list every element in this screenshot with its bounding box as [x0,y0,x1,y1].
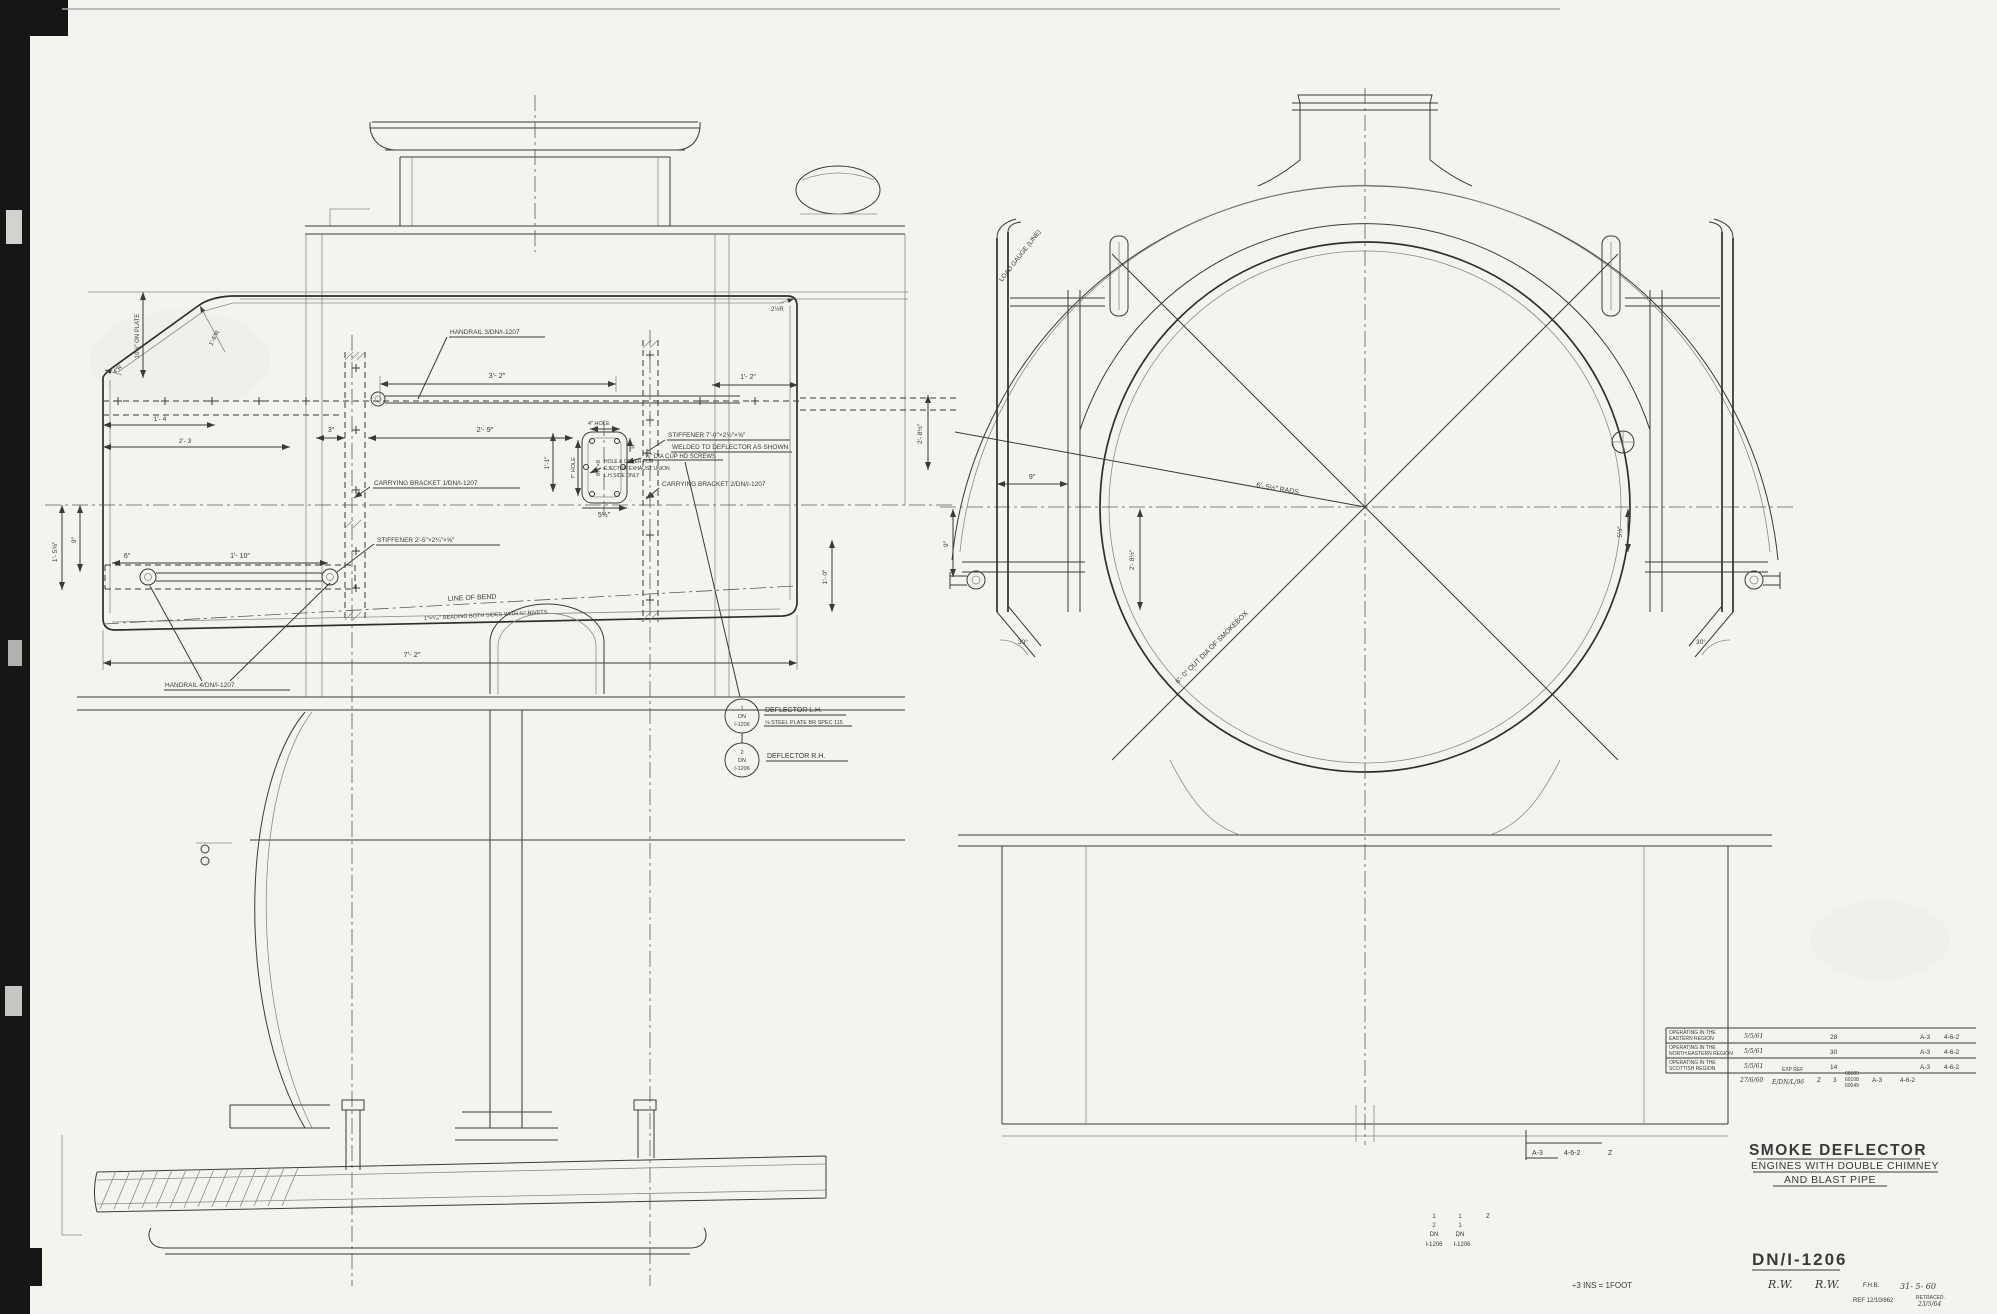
drawing-subtitle2: AND BLAST PIPE [1784,1174,1876,1186]
balloon2-bot: I-1206 [734,766,750,772]
rev-row2-qty: 30 [1830,1049,1838,1056]
rev-row1-region-l2: EASTERN REGION [1669,1036,1714,1042]
dim-6ft5-rads: 6′- 5½″ RADS. [1256,481,1302,497]
part-stack-r3b: DN [1456,1232,1465,1238]
rev-footer-wheel: 4-6-2 [1900,1077,1916,1084]
class-box-text: A-3 4-6-2 Z [1532,1150,1613,1157]
front-view-labels: LOAD GAUGE (LINE) 6′- 5½″ RADS. 6′- 0″ O… [943,229,1706,686]
dim-1ft1: 1′-1″ [544,456,551,470]
dim-9in-front: 9″ [1029,474,1036,481]
dim-2half-radius: 2½R [771,306,784,313]
front-view-deflector-left [950,219,1128,657]
rev-row3-class: A-3 [1920,1064,1931,1071]
dim-6in: 6″ [124,553,131,560]
label-stiffener1: STIFFENER 7′-0″×2½″×⅝″ [668,431,746,439]
dim-30deg-left: 30° [1018,638,1028,646]
part-stack-r3a: DN [1430,1232,1439,1238]
revision-table-text: OPERATING IN THE EASTERN REGION 5/5/61 2… [1669,1030,1960,1089]
smoke-deflector-drawing: HANDRAIL 3/DN/I-1207 3′- 2″ 1′- 2″ 2′- 9… [0,0,1997,1314]
rev-row2-class: A-3 [1920,1049,1931,1056]
rev-row2-wheel: 4-6-2 [1944,1049,1960,1056]
dim-7in-hole: 7″ HOLE [571,457,577,479]
balloon1-mid: DN [738,714,746,720]
dim-2ft8half-mid: 2′- 8½″ [916,423,924,444]
rev-row1-date: 5/5/61 [1744,1033,1763,1040]
label-line-of-bend: LINE OF BEND [448,593,497,603]
label-screws: ⅝″ DIA CUP HD SCREWS [645,454,716,460]
label-load-gauge: LOAD GAUGE (LINE) [998,229,1043,283]
front-view-centerlines [940,88,1795,1145]
label-hole-cover3: L.H SIDE ONLY [604,473,640,479]
side-view-chimney [330,122,880,226]
label-stiffener1b: WELDED TO DEFLECTOR AS SHOWN [672,444,789,451]
dim-3ft2: 3′- 2″ [489,371,506,380]
dim-smokebox-dia: 6′- 0″ OUT DIA OF SMOKEBOX [1174,610,1249,685]
dim-10half-plate: 10½″ ON PLATE [134,314,141,359]
label-hole-cover2: EJECTOR EXHAUST UNION [604,466,670,472]
rev-row3-qty: 14 [1830,1064,1838,1071]
dim-1ft4: 1′- 4 [154,416,167,423]
signature-2: R.W. [1814,1278,1840,1291]
dim-3in: 3″ [328,427,335,434]
part-stack-r4a: I-1206 [1425,1242,1443,1248]
rev-footer-three: 3 [1833,1077,1837,1084]
rev-footer-date: 27/6/60 [1739,1077,1763,1084]
part-stack-r1a: 1 [1432,1214,1436,1220]
balloon-labels: 1 DN I-1206 DEFLECTOR L.H. ⅛ STEEL PLATE… [734,706,843,772]
dim-3quarter: ¾″ [631,443,637,450]
drawing-ref: REF 12/10/862 [1853,1298,1894,1304]
label-stiffener2: STIFFENER 2′-5″×2¼″×⅝″ [377,537,455,544]
balloon1-bot: I-1206 [734,722,750,728]
checker-initials: F.H.B. [1863,1283,1880,1289]
drawing-date: 31- 5- 60 [1900,1282,1936,1291]
drawing-subtitle1: ENGINES WITH DOUBLE CHIMNEY [1751,1160,1939,1172]
dim-1ft0: 1′- 0″ [822,569,829,584]
part-stack-r1b: 1 [1458,1214,1462,1220]
dim-5half-front: 5½″ [1616,526,1624,538]
class-box-z: Z [1608,1150,1613,1157]
dim-2ft8half-front: 2′- 8½″ [1128,549,1136,570]
rev-footer-ref: E/DN/L/96 [1771,1079,1804,1086]
class-box-class: A-3 [1532,1150,1543,1157]
drawing-sheet: HANDRAIL 3/DN/I-1207 3′- 2″ 1′- 2″ 2′- 9… [0,0,1997,1314]
label-bracket1: CARRYING BRACKET 1/DN/I-1207 [374,480,478,487]
part-stack-r2a: 2 [1432,1223,1436,1229]
dim-1ft2: 1′- 2″ [740,374,756,381]
rev-row3-date: 5/5/61 [1744,1063,1763,1070]
label-handrail3: HANDRAIL 3/DN/I-1207 [450,329,520,336]
dim-5half: 5½″ [598,511,611,519]
balloon2-num: 2 [740,750,743,756]
handrail-lines [103,392,800,589]
scale-note: ÷3 INS = 1FOOT [1572,1281,1632,1290]
rev-row2-region-l2: NORTH EASTERN REGION [1669,1051,1733,1057]
label-handrail4: HANDRAIL 4/DN/I-1207 [165,682,235,689]
dim-2ft9: 2′- 9″ [477,425,494,434]
label-bracket2: CARRYING BRACKET 2/DN/I-1207 [662,481,766,488]
dim-4in-hole: 4″ HOLE [588,421,610,427]
rev-row1-qty: 28 [1830,1034,1838,1041]
retraced-date: 23/5/64 [1917,1301,1941,1308]
drawing-title: SMOKE DEFLECTOR [1749,1142,1927,1159]
part-stack-text: 1 1 Z 2 1 DN DN I-1206 I-1206 [1425,1214,1490,1248]
rev-row1-wheel: 4-6-2 [1944,1034,1960,1041]
title-underlines [164,337,1938,1270]
dim-9in-left: 9″ [71,536,78,543]
label-beading: 1″×⁵⁄₁₆″ BEADING BOTH SIDES WITH ⅜″ RIVE… [424,609,548,622]
rev-row2-date: 5/5/61 [1744,1048,1763,1055]
dim-30deg-right: 30° [1696,638,1706,646]
dim-8x8: 8¼″×8 [596,460,602,476]
balloon2-mid: DN [738,758,746,764]
dim-2ft3: 2′- 3 [179,438,192,445]
dim-1ft10: 1′- 10″ [230,553,250,560]
label-hole-cover1: HOLE & COVER FOR [604,459,654,465]
rev-row1-class: A-3 [1920,1034,1931,1041]
rev-footer-exp: EXP REF [1782,1067,1803,1073]
label-deflector-rh: DEFLECTOR R.H. [767,753,825,760]
dim-1ft5: 1′- 5⅝″ [52,541,59,562]
class-box-wheel: 4-6-2 [1564,1150,1580,1157]
rev-footer-z: Z [1817,1077,1821,1084]
film-edge-artifacts [0,0,1950,1314]
rev-row3-region-l2: SCOTTISH REGION [1669,1066,1716,1072]
rev-row3-wheel: 4-6-2 [1944,1064,1960,1071]
part-stack-r4b: I-1206 [1453,1242,1471,1248]
balloon1-num: 1 [740,706,743,712]
signature-1: R.W. [1767,1278,1793,1291]
rev-footer-class: A-3 [1872,1077,1883,1084]
part-stack-r2b: 1 [1458,1223,1462,1229]
rev-footer-eng3: 60049 [1845,1083,1859,1089]
title-block: SMOKE DEFLECTOR ENGINES WITH DOUBLE CHIM… [1572,1142,1945,1308]
drawing-number: DN/I-1206 [1752,1250,1847,1269]
dim-9in-front-left: 9″ [943,540,950,547]
dim-7ft2: 7′- 2″ [404,650,421,659]
part-stack-r1c: Z [1486,1214,1490,1220]
plan-view [62,1100,826,1254]
label-deflector-lh: DEFLECTOR L.H. [765,707,822,714]
front-view-deflector-right [1602,219,1780,657]
label-deflector-lh-spec: ⅛ STEEL PLATE BR SPEC 115 [765,720,843,726]
